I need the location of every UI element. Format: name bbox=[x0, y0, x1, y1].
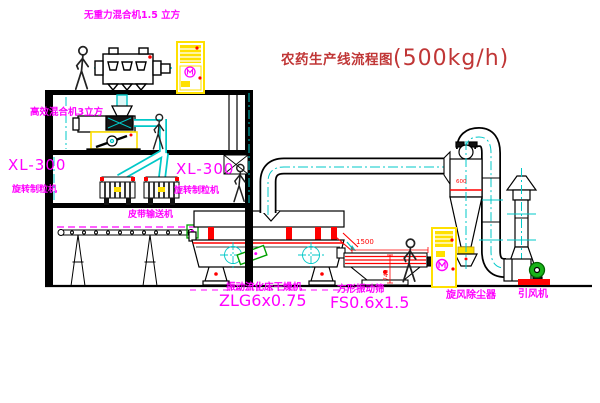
control-cabinet-sieve bbox=[432, 228, 456, 287]
dim-sieve-length: 1500 bbox=[356, 239, 374, 246]
cad-drawing-canvas: 无重力混合机1.5 立方 农药生产线流程图 (500kg/h) 高效混合机3立方… bbox=[0, 0, 600, 403]
building-column-front bbox=[245, 203, 253, 286]
label-fan: 引风机 bbox=[518, 290, 548, 301]
label-granulator-left-model: XL-300 bbox=[8, 158, 66, 174]
person-top-floor bbox=[76, 47, 88, 90]
dryer-top-valves bbox=[208, 227, 337, 240]
control-cabinet-top bbox=[177, 42, 204, 93]
drawing-title: 农药生产线流程图 (500kg/h) bbox=[281, 46, 509, 71]
title-capacity: (500kg/h) bbox=[393, 46, 509, 71]
label-cyclone: 旋风除尘器 bbox=[446, 291, 496, 302]
fluid-bed-dryer-machine bbox=[189, 211, 344, 285]
belt-conveyor-machine bbox=[57, 225, 198, 286]
title-text: 农药生产线流程图 bbox=[281, 48, 393, 71]
label-dryer-model: ZLG6x0.75 bbox=[219, 293, 307, 310]
dim-sieve-height: 740 bbox=[384, 270, 390, 281]
conveyor-rollers bbox=[71, 231, 182, 234]
label-sieve-model: FS0.6x1.5 bbox=[330, 295, 409, 312]
ground-line bbox=[45, 286, 592, 290]
induced-draft-fan-machine bbox=[504, 259, 550, 285]
gravity-free-mixer-machine bbox=[94, 48, 172, 112]
label-high-eff-mixer: 高效混合机3立方 bbox=[30, 108, 103, 118]
dim-cyclone: 600 bbox=[456, 180, 467, 186]
label-granulator-right-model: XL-300 bbox=[176, 162, 234, 178]
label-granulator-right-name: 旋转制粒机 bbox=[174, 187, 219, 196]
label-granulator-left-name: 旋转制粒机 bbox=[12, 186, 57, 195]
duct-dryer-to-cyclone bbox=[268, 152, 450, 215]
granulator-left-machine bbox=[100, 177, 135, 205]
label-belt-conveyor: 皮带输送机 bbox=[128, 211, 173, 220]
label-gravity-mixer: 无重力混合机1.5 立方 bbox=[84, 11, 180, 21]
